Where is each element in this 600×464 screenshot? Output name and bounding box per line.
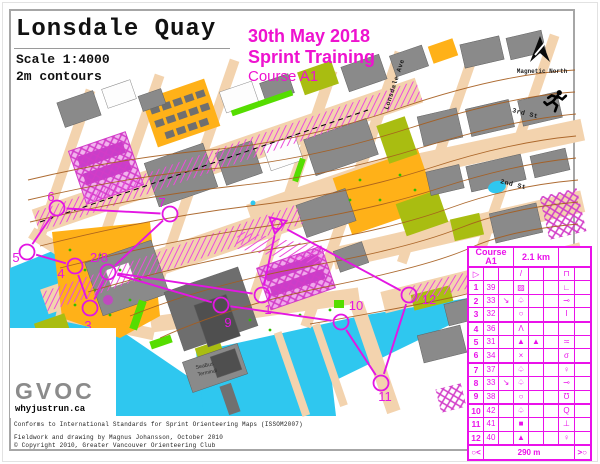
cd-cell — [544, 294, 559, 307]
cd-cell: 38 — [484, 390, 499, 404]
control-circle — [20, 245, 35, 260]
cd-cell: 10 — [468, 404, 484, 418]
cd-cell — [529, 308, 544, 322]
cd-cell: 37 — [484, 363, 499, 377]
cd-cell — [575, 349, 591, 363]
cd-cell — [575, 418, 591, 431]
cd-cell: ↘ — [499, 377, 514, 390]
cd-cell: ↘ — [499, 294, 514, 307]
event-name: Sprint Training — [248, 47, 375, 68]
cd-cell — [499, 267, 514, 281]
cd-finish-cell: >○ — [575, 445, 591, 460]
cd-cell — [544, 267, 559, 281]
cd-cell — [529, 377, 544, 390]
cd-cell: ♤ — [514, 377, 529, 390]
cd-cell — [499, 281, 514, 294]
cd-row: 634×σ — [468, 349, 591, 363]
cd-cell — [499, 363, 514, 377]
cd-row: 332○I — [468, 308, 591, 322]
control-number: 7 — [158, 195, 165, 210]
control-description-table: Course A12.1 km▷/⊓139▨∟233↘♤⊸332○I436Λ53… — [467, 246, 592, 461]
cd-cell: Λ — [514, 322, 529, 336]
control-number: 6 — [47, 189, 54, 204]
cd-cell — [544, 335, 559, 348]
control-number: 4 — [57, 266, 64, 281]
cd-cell — [499, 335, 514, 348]
control-number: 9 — [224, 315, 231, 330]
cd-cell: 12 — [468, 431, 484, 445]
cd-cell: ▲ — [514, 431, 529, 445]
cd-cell: ▷ — [468, 267, 484, 281]
cd-header-cell: 2.1 km — [514, 247, 559, 267]
cd-cell — [499, 322, 514, 336]
cd-cell: 41 — [484, 418, 499, 431]
magnetic-north-label: Magnetic North — [504, 68, 580, 75]
cd-row: ▷/⊓ — [468, 267, 591, 281]
cd-cell — [529, 418, 544, 431]
cd-cell: 39 — [484, 281, 499, 294]
cd-cell — [575, 377, 591, 390]
cd-cell: ▲ — [514, 335, 529, 348]
cd-cell — [575, 308, 591, 322]
cd-cell: ♤ — [514, 404, 529, 418]
cd-cell: 3 — [468, 308, 484, 322]
cd-cell — [575, 294, 591, 307]
cd-row: 833↘♤⊸ — [468, 377, 591, 390]
cd-cell: I — [559, 308, 575, 322]
cd-cell — [544, 322, 559, 336]
cd-cell — [575, 267, 591, 281]
cd-cell — [575, 404, 591, 418]
contour-interval: 2m contours — [16, 69, 102, 84]
cd-cell — [529, 281, 544, 294]
cd-cell: 31 — [484, 335, 499, 348]
cd-header-cell — [559, 247, 591, 267]
cd-cell — [544, 431, 559, 445]
cd-cell — [529, 267, 544, 281]
cd-cell — [529, 322, 544, 336]
cd-cell: ♀ — [559, 431, 575, 445]
cd-cell: ⊥ — [559, 418, 575, 431]
cd-cell: ∟ — [559, 281, 575, 294]
cd-cell — [544, 418, 559, 431]
cd-cell — [544, 390, 559, 404]
event-header: 30th May 2018 Sprint Training Course A1 — [248, 26, 375, 85]
cd-cell: ♤ — [514, 363, 529, 377]
cd-cell — [499, 349, 514, 363]
cd-cell — [499, 431, 514, 445]
cd-cell — [544, 377, 559, 390]
cd-cell: ⊸ — [559, 377, 575, 390]
cd-row: 233↘♤⊸ — [468, 294, 591, 307]
cd-row: 139▨∟ — [468, 281, 591, 294]
footer-copyright: © Copyright 2010, Greater Vancouver Orie… — [14, 442, 215, 449]
cd-cell — [484, 267, 499, 281]
control-number: 2/8 — [90, 250, 108, 265]
cd-cell: 36 — [484, 322, 499, 336]
cd-finish-cell: 290 m — [484, 445, 575, 460]
cd-cell — [544, 363, 559, 377]
cd-row: 1141■⊥ — [468, 418, 591, 431]
control-number: 5 — [12, 250, 19, 265]
cd-cell: 32 — [484, 308, 499, 322]
cd-cell: 6 — [468, 349, 484, 363]
cd-cell: Ʊ — [559, 390, 575, 404]
cd-finish-cell: ○< — [468, 445, 484, 460]
cd-cell — [575, 363, 591, 377]
cd-cell — [559, 322, 575, 336]
cd-cell: 5 — [468, 335, 484, 348]
cd-cell: ♀ — [559, 363, 575, 377]
cd-cell: σ — [559, 349, 575, 363]
cd-cell: ▲ — [529, 335, 544, 348]
cd-row: 531▲▲≍ — [468, 335, 591, 348]
cd-cell: × — [514, 349, 529, 363]
cd-cell — [544, 349, 559, 363]
cd-cell — [575, 390, 591, 404]
cd-cell — [529, 294, 544, 307]
cd-cell: 33 — [484, 294, 499, 307]
cd-cell — [499, 390, 514, 404]
cd-cell: 34 — [484, 349, 499, 363]
map-title: Lonsdale Quay — [16, 16, 216, 43]
cd-cell: ○ — [514, 308, 529, 322]
club-website: whyjustrun.ca — [15, 404, 85, 414]
cd-cell: ⊸ — [559, 294, 575, 307]
cd-row: 737♤♀ — [468, 363, 591, 377]
cd-cell: ♤ — [514, 294, 529, 307]
control-number: 11 — [378, 389, 392, 404]
cd-cell — [529, 363, 544, 377]
cd-cell: 4 — [468, 322, 484, 336]
cd-row: 938○Ʊ — [468, 390, 591, 404]
cd-cell — [575, 335, 591, 348]
cd-cell: 33 — [484, 377, 499, 390]
cd-cell — [575, 322, 591, 336]
footer-fieldwork: Fieldwork and drawing by Magnus Johansso… — [14, 434, 223, 441]
cd-cell — [499, 308, 514, 322]
title-rule — [14, 48, 230, 49]
cd-cell — [499, 418, 514, 431]
event-date: 30th May 2018 — [248, 26, 375, 47]
cd-cell: 2 — [468, 294, 484, 307]
cd-cell — [544, 308, 559, 322]
cd-cell: / — [514, 267, 529, 281]
cd-row: 436Λ — [468, 322, 591, 336]
cd-cell — [544, 404, 559, 418]
cd-cell — [499, 404, 514, 418]
cd-cell: 40 — [484, 431, 499, 445]
course-name: Course A1 — [248, 68, 375, 85]
cd-cell: 42 — [484, 404, 499, 418]
cd-cell — [575, 281, 591, 294]
cd-cell: 1 — [468, 281, 484, 294]
cd-cell: ▨ — [514, 281, 529, 294]
cd-cell — [529, 390, 544, 404]
cd-cell — [529, 349, 544, 363]
control-descriptions: Course A12.1 km▷/⊓139▨∟233↘♤⊸332○I436Λ53… — [467, 246, 592, 461]
cd-cell — [529, 431, 544, 445]
cd-cell — [575, 431, 591, 445]
cd-cell — [544, 281, 559, 294]
map-scale: Scale 1:4000 — [16, 52, 110, 67]
cd-row: 1042♤Q — [468, 404, 591, 418]
cd-cell: ■ — [514, 418, 529, 431]
footer-standards: Conforms to International Standards for … — [14, 421, 303, 428]
cd-cell: 9 — [468, 390, 484, 404]
cd-row: 1240▲♀ — [468, 431, 591, 445]
club-logo-text: GVOC — [15, 378, 95, 405]
control-number: 10 — [349, 298, 363, 313]
control-number: 12 — [422, 292, 436, 307]
cd-cell: 8 — [468, 377, 484, 390]
cd-cell: 7 — [468, 363, 484, 377]
control-number: 1 — [264, 302, 271, 317]
cd-cell — [529, 404, 544, 418]
cd-cell: ○ — [514, 390, 529, 404]
cd-cell: 11 — [468, 418, 484, 431]
cd-cell: ≍ — [559, 335, 575, 348]
cd-cell: Q — [559, 404, 575, 418]
cd-header-cell: Course A1 — [468, 247, 514, 267]
cd-cell: ⊓ — [559, 267, 575, 281]
